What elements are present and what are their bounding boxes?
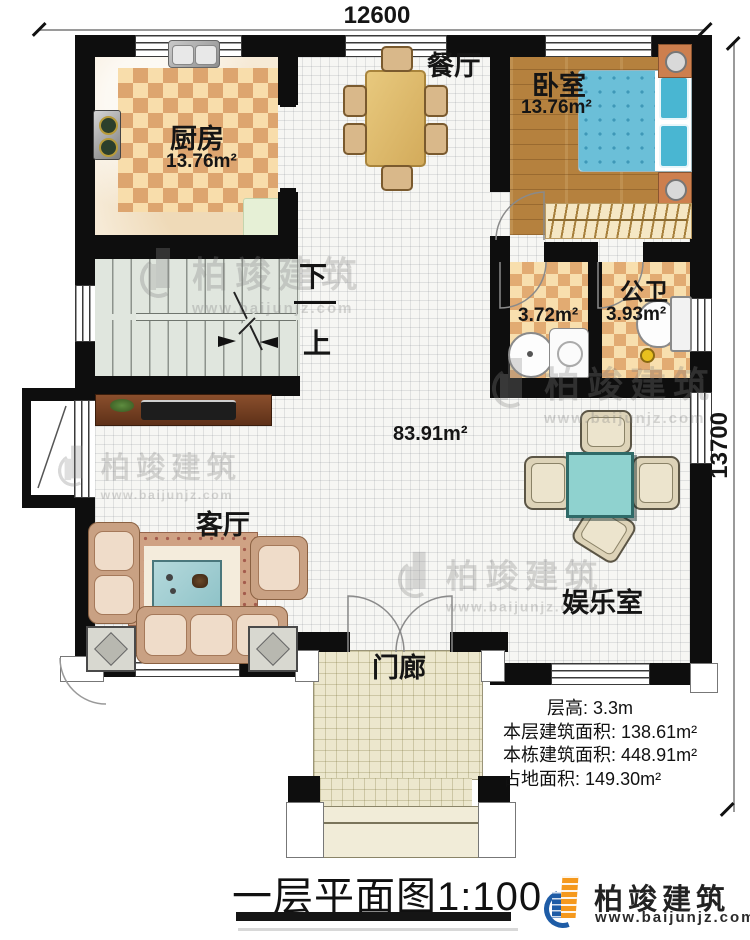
stair-up-label: 上 xyxy=(303,330,331,358)
wall-kitchen-right-a xyxy=(278,57,298,105)
brand-url: www.baijunjz.com xyxy=(595,909,750,926)
nightstand-lamp xyxy=(665,179,687,201)
dimension-line-top xyxy=(40,29,706,31)
dining-chair xyxy=(424,123,448,155)
sofa-cushion xyxy=(190,614,233,656)
sofa-cushion xyxy=(144,614,187,656)
coffee-table xyxy=(152,560,222,608)
washing-machine xyxy=(549,328,589,378)
kitchen-sink xyxy=(168,40,220,68)
window-entertainment-bottom xyxy=(551,663,650,685)
title-underline xyxy=(236,912,511,921)
window-bay-opening xyxy=(74,400,95,498)
sofa-cushion xyxy=(258,545,300,591)
speaker-cone xyxy=(256,632,290,666)
entertainment-label: 娱乐室 xyxy=(562,590,643,617)
stat-value: 149.30m² xyxy=(585,769,661,789)
speaker-cone xyxy=(94,632,128,666)
kitchen-stove xyxy=(93,110,121,160)
armchair xyxy=(250,536,308,600)
brand-logo: 柏竣建筑 www.baijunjz.com xyxy=(544,872,744,932)
kitchen-label: 厨房 xyxy=(170,126,224,153)
stair-treads-upper xyxy=(112,259,298,314)
logo-building-blue xyxy=(552,892,561,918)
sill-entry-left xyxy=(295,650,319,682)
dining-chair xyxy=(381,165,413,191)
stat-label: 层高: xyxy=(547,698,588,718)
floor-plan-canvas: 柏竣建筑 www.baijunjz.com 柏竣建筑 www.baijunjz.… xyxy=(0,0,750,940)
tv-screen xyxy=(141,400,236,420)
game-table xyxy=(566,452,634,518)
wall-bath-top-b xyxy=(643,242,690,262)
dining-label: 餐厅 xyxy=(427,53,481,80)
wall-kitchen-bottom xyxy=(75,235,298,259)
bedroom-area: 13.76m² xyxy=(521,98,592,117)
table-decor xyxy=(192,574,208,588)
dining-chair xyxy=(381,46,413,72)
bay-window-interior xyxy=(31,401,75,495)
porch-pillar-left xyxy=(288,776,320,802)
stat-value: 448.91m² xyxy=(621,745,697,765)
stat-floor-area: 本层建筑面积: 138.61m² xyxy=(503,718,718,742)
stat-label: 本栋建筑面积: xyxy=(503,745,616,765)
porch-pillar-base-left xyxy=(286,802,324,858)
washroom-area: 3.72m² xyxy=(518,306,578,325)
stat-building-area: 本栋建筑面积: 448.91m² xyxy=(503,741,718,765)
tv-cabinet xyxy=(95,394,272,426)
sink-basin-left xyxy=(172,45,194,65)
bed-pillow-bottom xyxy=(659,124,689,168)
window-stairs-left xyxy=(75,285,95,342)
floor-drain xyxy=(640,348,655,363)
stat-label: 本层建筑面积: xyxy=(503,722,616,742)
dimension-line-right xyxy=(733,44,735,812)
kitchen-door-jamb-top xyxy=(280,102,296,107)
sofa-cushion xyxy=(94,531,134,571)
hall-area: 83.91m² xyxy=(393,424,468,444)
bedroom-label: 卧室 xyxy=(532,73,586,100)
nightstand-lamp xyxy=(665,51,687,73)
porch-step-line xyxy=(322,822,478,824)
porch-lower-floor xyxy=(320,778,472,806)
sink-basin-right xyxy=(195,45,217,65)
brand-logo-icon xyxy=(544,874,588,928)
kitchen-area: 13.76m² xyxy=(166,152,237,171)
game-chair xyxy=(524,456,572,510)
sofa-left xyxy=(88,522,140,624)
stove-burner-top xyxy=(99,116,118,135)
dining-chair xyxy=(343,85,367,117)
game-chair xyxy=(580,410,632,454)
wall-right xyxy=(690,35,712,685)
stair-handrail xyxy=(136,313,296,321)
wall-bedroom-left-a xyxy=(490,57,510,192)
table-cup xyxy=(170,588,176,594)
public-bath-label: 公卫 xyxy=(620,281,668,305)
stat-value: 138.61m² xyxy=(621,722,697,742)
plant xyxy=(110,399,134,412)
speaker-right xyxy=(248,626,298,672)
living-label: 客厅 xyxy=(196,512,250,539)
dining-chair xyxy=(424,85,448,117)
wall-bedroom-left-b xyxy=(490,236,510,398)
speaker-left xyxy=(86,626,136,672)
chair-pad xyxy=(531,463,565,503)
wardrobe-rod xyxy=(548,219,687,221)
porch-label: 门廊 xyxy=(372,655,426,682)
dimension-top-value: 12600 xyxy=(332,4,422,28)
wall-entry-left xyxy=(298,632,350,652)
toilet-tank xyxy=(670,296,692,352)
bed-duvet xyxy=(579,71,655,171)
table-cup xyxy=(166,574,173,581)
sill-bottom-right xyxy=(690,663,718,693)
stats-block: 层高: 3.3m 本层建筑面积: 138.61m² 本栋建筑面积: 448.91… xyxy=(503,694,718,788)
stat-value: 3.3m xyxy=(593,698,633,718)
nightstand-bottom xyxy=(658,172,692,206)
wall-bath-bottom xyxy=(490,378,690,398)
nightstand-top xyxy=(658,44,692,78)
bay-window-left xyxy=(22,388,31,508)
porch-pillar-base-right xyxy=(478,802,516,858)
stair-down-underline xyxy=(294,301,336,304)
stair-treads-lower xyxy=(112,320,298,376)
logo-building-orange xyxy=(560,876,579,918)
game-chair xyxy=(632,456,680,510)
kitchen-door-jamb-bottom xyxy=(280,188,296,193)
washer-drum xyxy=(557,341,583,367)
porch-steps xyxy=(322,806,480,858)
dimension-right-value: 13700 xyxy=(708,412,732,479)
chair-pad xyxy=(587,417,625,447)
stat-label: 占地面积: xyxy=(503,769,580,789)
bed-pillow-top xyxy=(659,76,689,120)
chair-pad xyxy=(639,463,673,503)
bathroom-sink xyxy=(508,332,554,378)
wall-entry-right xyxy=(450,632,508,652)
sink-drain xyxy=(527,351,533,357)
sofa-cushion xyxy=(94,575,134,615)
stat-floor-height: 层高: 3.3m xyxy=(503,694,718,718)
stove-burner-bottom xyxy=(99,138,118,157)
window-bath-right xyxy=(690,298,712,352)
stair-down-label: 下 xyxy=(299,263,327,291)
sill-entry-right xyxy=(481,650,505,682)
dining-table xyxy=(365,70,426,167)
wall-stairs-bottom xyxy=(75,376,300,396)
wall-bath-top-a xyxy=(544,242,598,262)
public-bath-area: 3.93m² xyxy=(606,305,666,324)
bed xyxy=(578,70,692,172)
wall-bath-divider xyxy=(588,262,602,378)
wardrobe xyxy=(545,203,692,239)
dining-chair xyxy=(343,123,367,155)
window-bedroom-top xyxy=(545,35,652,57)
stat-footprint-area: 占地面积: 149.30m² xyxy=(503,765,718,789)
title-underline-light xyxy=(238,928,518,931)
